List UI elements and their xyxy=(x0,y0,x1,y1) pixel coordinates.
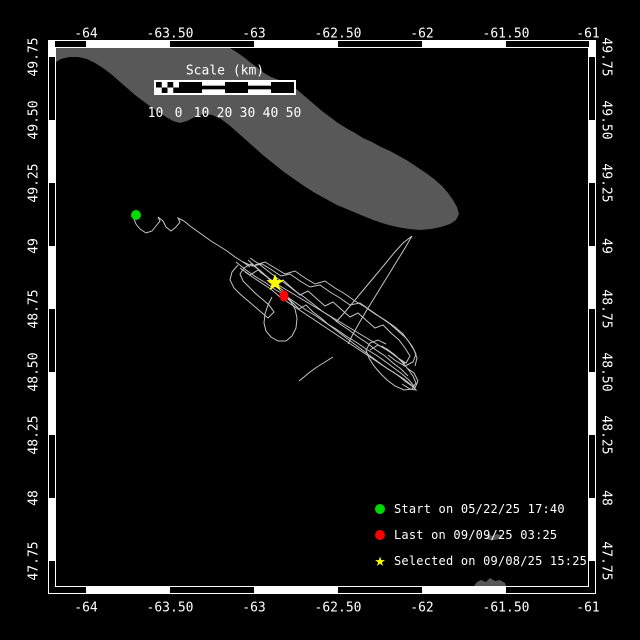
lat-tick-label-right: 48.75 xyxy=(599,289,614,328)
lat-tick-label-right: 49.50 xyxy=(599,100,614,139)
last-marker xyxy=(280,291,289,302)
scale-bar-tick-label: 30 xyxy=(236,106,259,121)
lon-tick-label-bottom: -61 xyxy=(576,601,599,616)
lat-tick-label-right: 48.50 xyxy=(599,352,614,391)
lat-tick-label-right: 49.25 xyxy=(599,163,614,202)
scale-bar-tick-label: 50 xyxy=(282,106,305,121)
lon-tick-label-bottom: -63.50 xyxy=(147,601,194,616)
start-marker xyxy=(131,210,141,220)
last-legend-icon xyxy=(366,530,394,540)
map-viewport: -64-64-63.50-63.50-63-63-62.50-62.50-62-… xyxy=(0,0,640,640)
lat-tick-label-left: 49.50 xyxy=(27,100,42,139)
lon-tick-label-top: -62 xyxy=(410,27,433,42)
scale-bar-tick-label: 40 xyxy=(259,106,282,121)
lon-tick-label-bottom: -62.50 xyxy=(315,601,362,616)
lon-tick-label-top: -61 xyxy=(576,27,599,42)
legend-row-last: Last on 09/09/25 03:25 xyxy=(366,523,557,547)
lat-tick-label-right: 48.25 xyxy=(599,415,614,454)
selected-legend-star-icon: ★ xyxy=(366,554,394,568)
legend-start-label: Start on 05/22/25 17:40 xyxy=(394,502,565,516)
lat-tick-label-left: 48 xyxy=(27,490,42,506)
lat-tick-label-left: 48.25 xyxy=(27,415,42,454)
lon-tick-label-top: -63 xyxy=(242,27,265,42)
lat-tick-label-left: 48.50 xyxy=(27,352,42,391)
scale-bar-tick-label: 0 xyxy=(167,106,190,121)
lon-tick-label-top: -63.50 xyxy=(147,27,194,42)
lon-tick-label-top: -62.50 xyxy=(315,27,362,42)
scale-bar-tick-label: 10 xyxy=(190,106,213,121)
lat-tick-label-left: 49 xyxy=(27,238,42,254)
legend-row-start: Start on 05/22/25 17:40 xyxy=(366,497,565,521)
lat-tick-label-left: 49.75 xyxy=(27,37,42,76)
lat-tick-label-left: 48.75 xyxy=(27,289,42,328)
lon-tick-label-top: -61.50 xyxy=(483,27,530,42)
legend-row-selected: ★ Selected on 09/08/25 15:25 xyxy=(366,549,587,573)
legend-last-label: Last on 09/09/25 03:25 xyxy=(394,528,557,542)
scale-bar-labels: 1001020304050 xyxy=(144,106,328,121)
legend-selected-label: Selected on 09/08/25 15:25 xyxy=(394,554,587,568)
lon-tick-label-top: -64 xyxy=(74,27,97,42)
lat-tick-label-right: 49 xyxy=(599,238,614,254)
lat-tick-label-right: 49.75 xyxy=(599,37,614,76)
lon-tick-label-bottom: -62 xyxy=(410,601,433,616)
lon-tick-label-bottom: -61.50 xyxy=(483,601,530,616)
lat-tick-label-left: 49.25 xyxy=(27,163,42,202)
lon-tick-label-bottom: -63 xyxy=(242,601,265,616)
scale-bar xyxy=(155,81,296,95)
scale-bar-title: Scale (km) xyxy=(186,64,264,79)
lat-tick-label-left: 47.75 xyxy=(27,541,42,580)
scale-bar-tick-label: 10 xyxy=(144,106,167,121)
start-legend-icon xyxy=(366,504,394,514)
scale-bar-tick-label: 20 xyxy=(213,106,236,121)
lat-tick-label-right: 47.75 xyxy=(599,541,614,580)
lon-tick-label-bottom: -64 xyxy=(74,601,97,616)
lat-tick-label-right: 48 xyxy=(599,490,614,506)
